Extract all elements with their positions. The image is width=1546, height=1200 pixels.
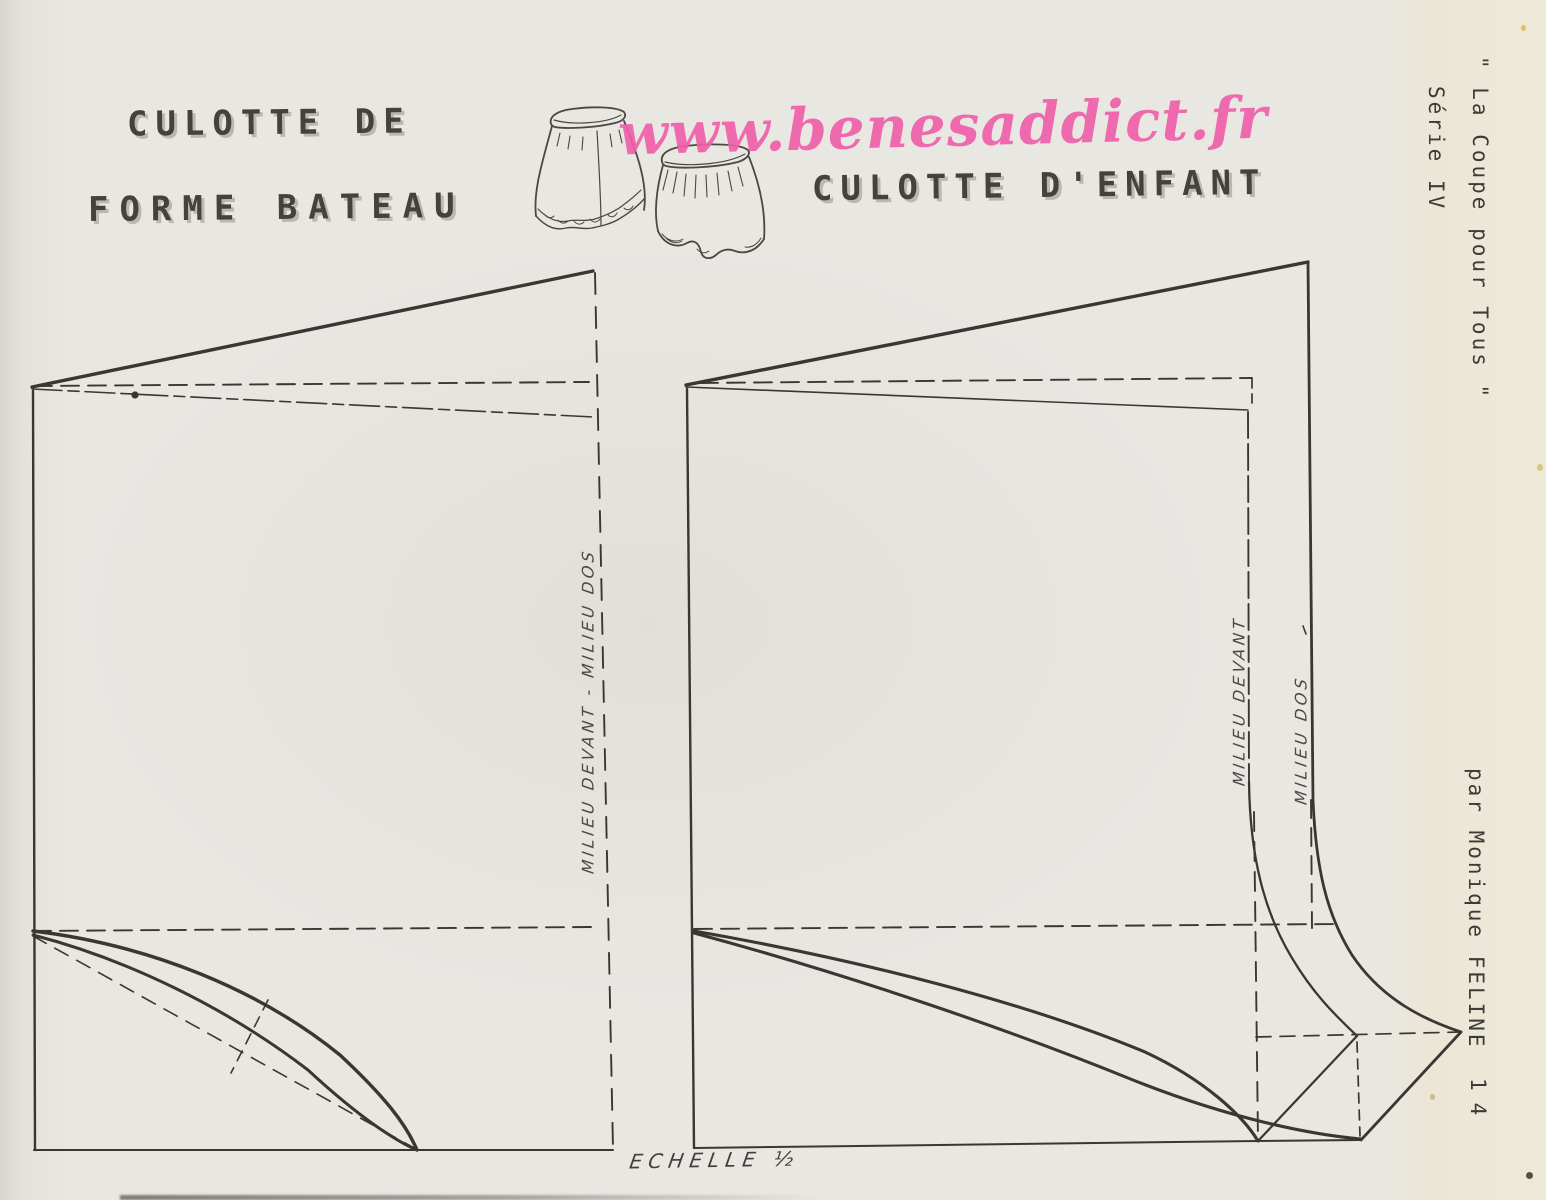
left-bloomer-lace-outer (536, 199, 644, 229)
right-crotch-curve-back (694, 933, 1361, 1139)
scan-speck (1537, 464, 1543, 471)
left-fold-line-dashed (595, 273, 613, 1148)
scan-speck (1526, 1172, 1533, 1179)
right-pattern-title: CULOTTE D'ENFANT (812, 163, 1268, 209)
left-apex-guide-line (32, 389, 594, 417)
milieu-dos-line (1308, 262, 1461, 1032)
milieu-dos-label: MILIEU DOS (1292, 674, 1311, 806)
dos-tick-mark (1303, 626, 1306, 634)
gusset-left-diagonal (1258, 1036, 1357, 1141)
right-crotch-curve-front (694, 931, 1258, 1141)
left-bloomer-waistband-inner (554, 115, 621, 123)
left-pattern-title-line1: CULOTTE DE (127, 102, 412, 145)
milieu-devant-label: MILIEU DEVANT (1230, 615, 1249, 787)
gusset-vertical-dashed (1357, 1042, 1360, 1136)
right-waist-guide-dashed (700, 378, 1252, 383)
left-guide-dot (131, 391, 138, 398)
left-top-edge (32, 271, 593, 387)
right-hip-guide-dashed (694, 924, 1335, 929)
right-side-edge (687, 389, 694, 1148)
scan-speck (1521, 25, 1526, 31)
left-bloomer-center-seam (597, 131, 601, 226)
left-bloomer-gathers (557, 130, 622, 150)
left-center-fold-label: MILIEU DEVANT - MILIEU DOS (579, 547, 598, 875)
milieu-devant-curve (1249, 782, 1357, 1036)
scale-label: ECHELLE ½ (628, 1147, 801, 1174)
left-hip-guide-dashed (33, 927, 592, 931)
left-chord-dashed (33, 936, 416, 1149)
left-crotch-curve-outer (33, 931, 417, 1150)
pattern-linework (0, 0, 1546, 1200)
page-number: 14 (1466, 1078, 1490, 1127)
left-crotch-curve-inner (33, 935, 417, 1150)
collection-title: " La Coupe pour Tous " (1468, 56, 1492, 400)
gusset-top-dashed (1256, 1032, 1461, 1037)
right-pattern-drawing (686, 262, 1461, 1148)
left-pattern-drawing (32, 271, 613, 1150)
dos-extension-dashed (1311, 800, 1312, 928)
gusset-right-diagonal (1361, 1032, 1461, 1140)
scanned-page: CULOTTE DE FORME BATEAU CULOTTE D'ENFANT… (0, 0, 1546, 1200)
author-label: par Monique FELINE (1464, 768, 1488, 1050)
series-label: Série IV (1424, 86, 1448, 211)
left-bloomer-left-side (535, 126, 552, 216)
right-top-edge (686, 262, 1308, 385)
scan-edge-smudge (120, 1195, 820, 1200)
left-side-edge (33, 391, 35, 1150)
right-apex-guide-line (686, 387, 1248, 410)
scan-speck (1430, 1094, 1435, 1100)
left-waist-guide-dashed (34, 382, 589, 386)
left-pattern-title-line2: FORME BATEAU (88, 186, 466, 230)
